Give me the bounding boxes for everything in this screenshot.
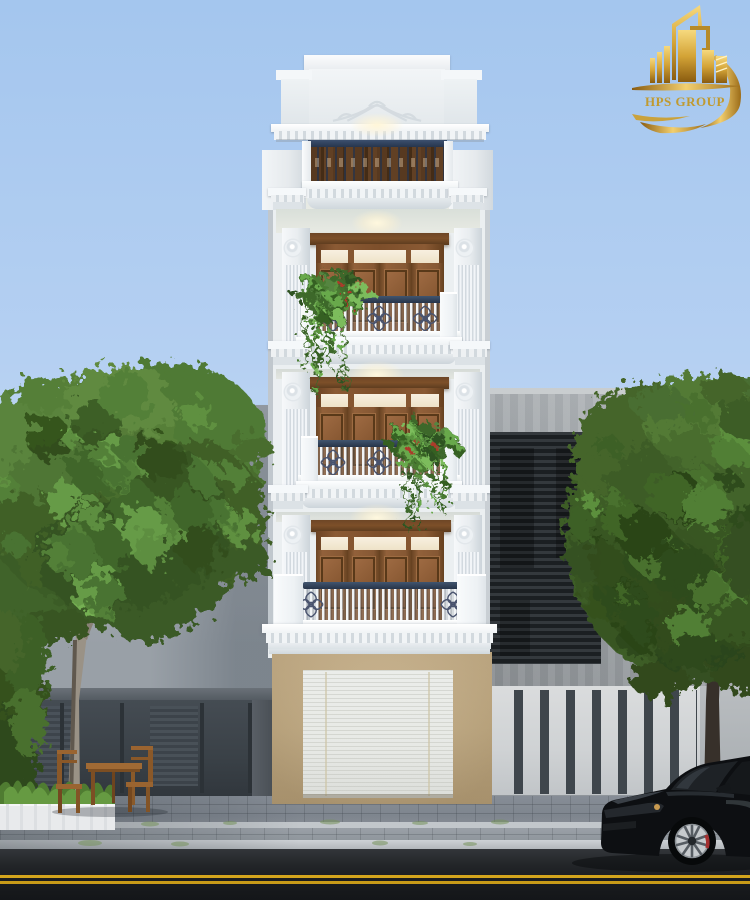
svg-text:HPS GROUP: HPS GROUP	[645, 94, 725, 109]
